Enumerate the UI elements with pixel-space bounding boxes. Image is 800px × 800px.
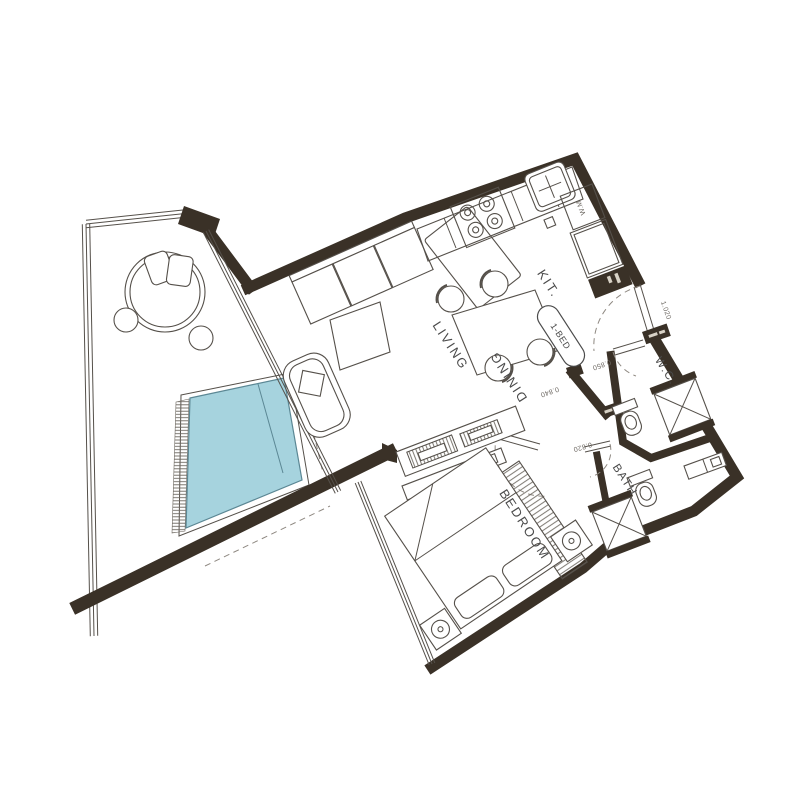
stool [189,326,213,350]
washing-machine-label: W.M [576,199,588,215]
wc-door [613,340,645,376]
bed [358,429,592,650]
stool [114,308,138,332]
wc-door-dimension: 0.850 [591,358,611,371]
kitchen-label: KIT. [534,267,563,301]
entry-door-dimension: 1.020 [659,300,672,320]
wc-fixtures [612,371,715,442]
terrace-furniture [114,250,213,350]
counter-knob [544,217,556,229]
hall-door-dimension: 0.840 [539,385,559,398]
bedroom-furniture [358,406,592,650]
floor-plan-canvas: LIVING DINING KIT. BEDROOM W.C. BATH 1-B… [0,0,800,800]
wall-terrace-stub [178,206,220,237]
dining-chair [438,286,464,312]
coffee-table [330,302,390,370]
daybed-cushion [166,254,194,287]
dining-chair [482,271,508,297]
dining-chair [527,339,553,365]
floor-plan: LIVING DINING KIT. BEDROOM W.C. BATH 1-B… [0,0,800,800]
pillow [299,370,325,396]
bath-vanity [684,452,726,479]
